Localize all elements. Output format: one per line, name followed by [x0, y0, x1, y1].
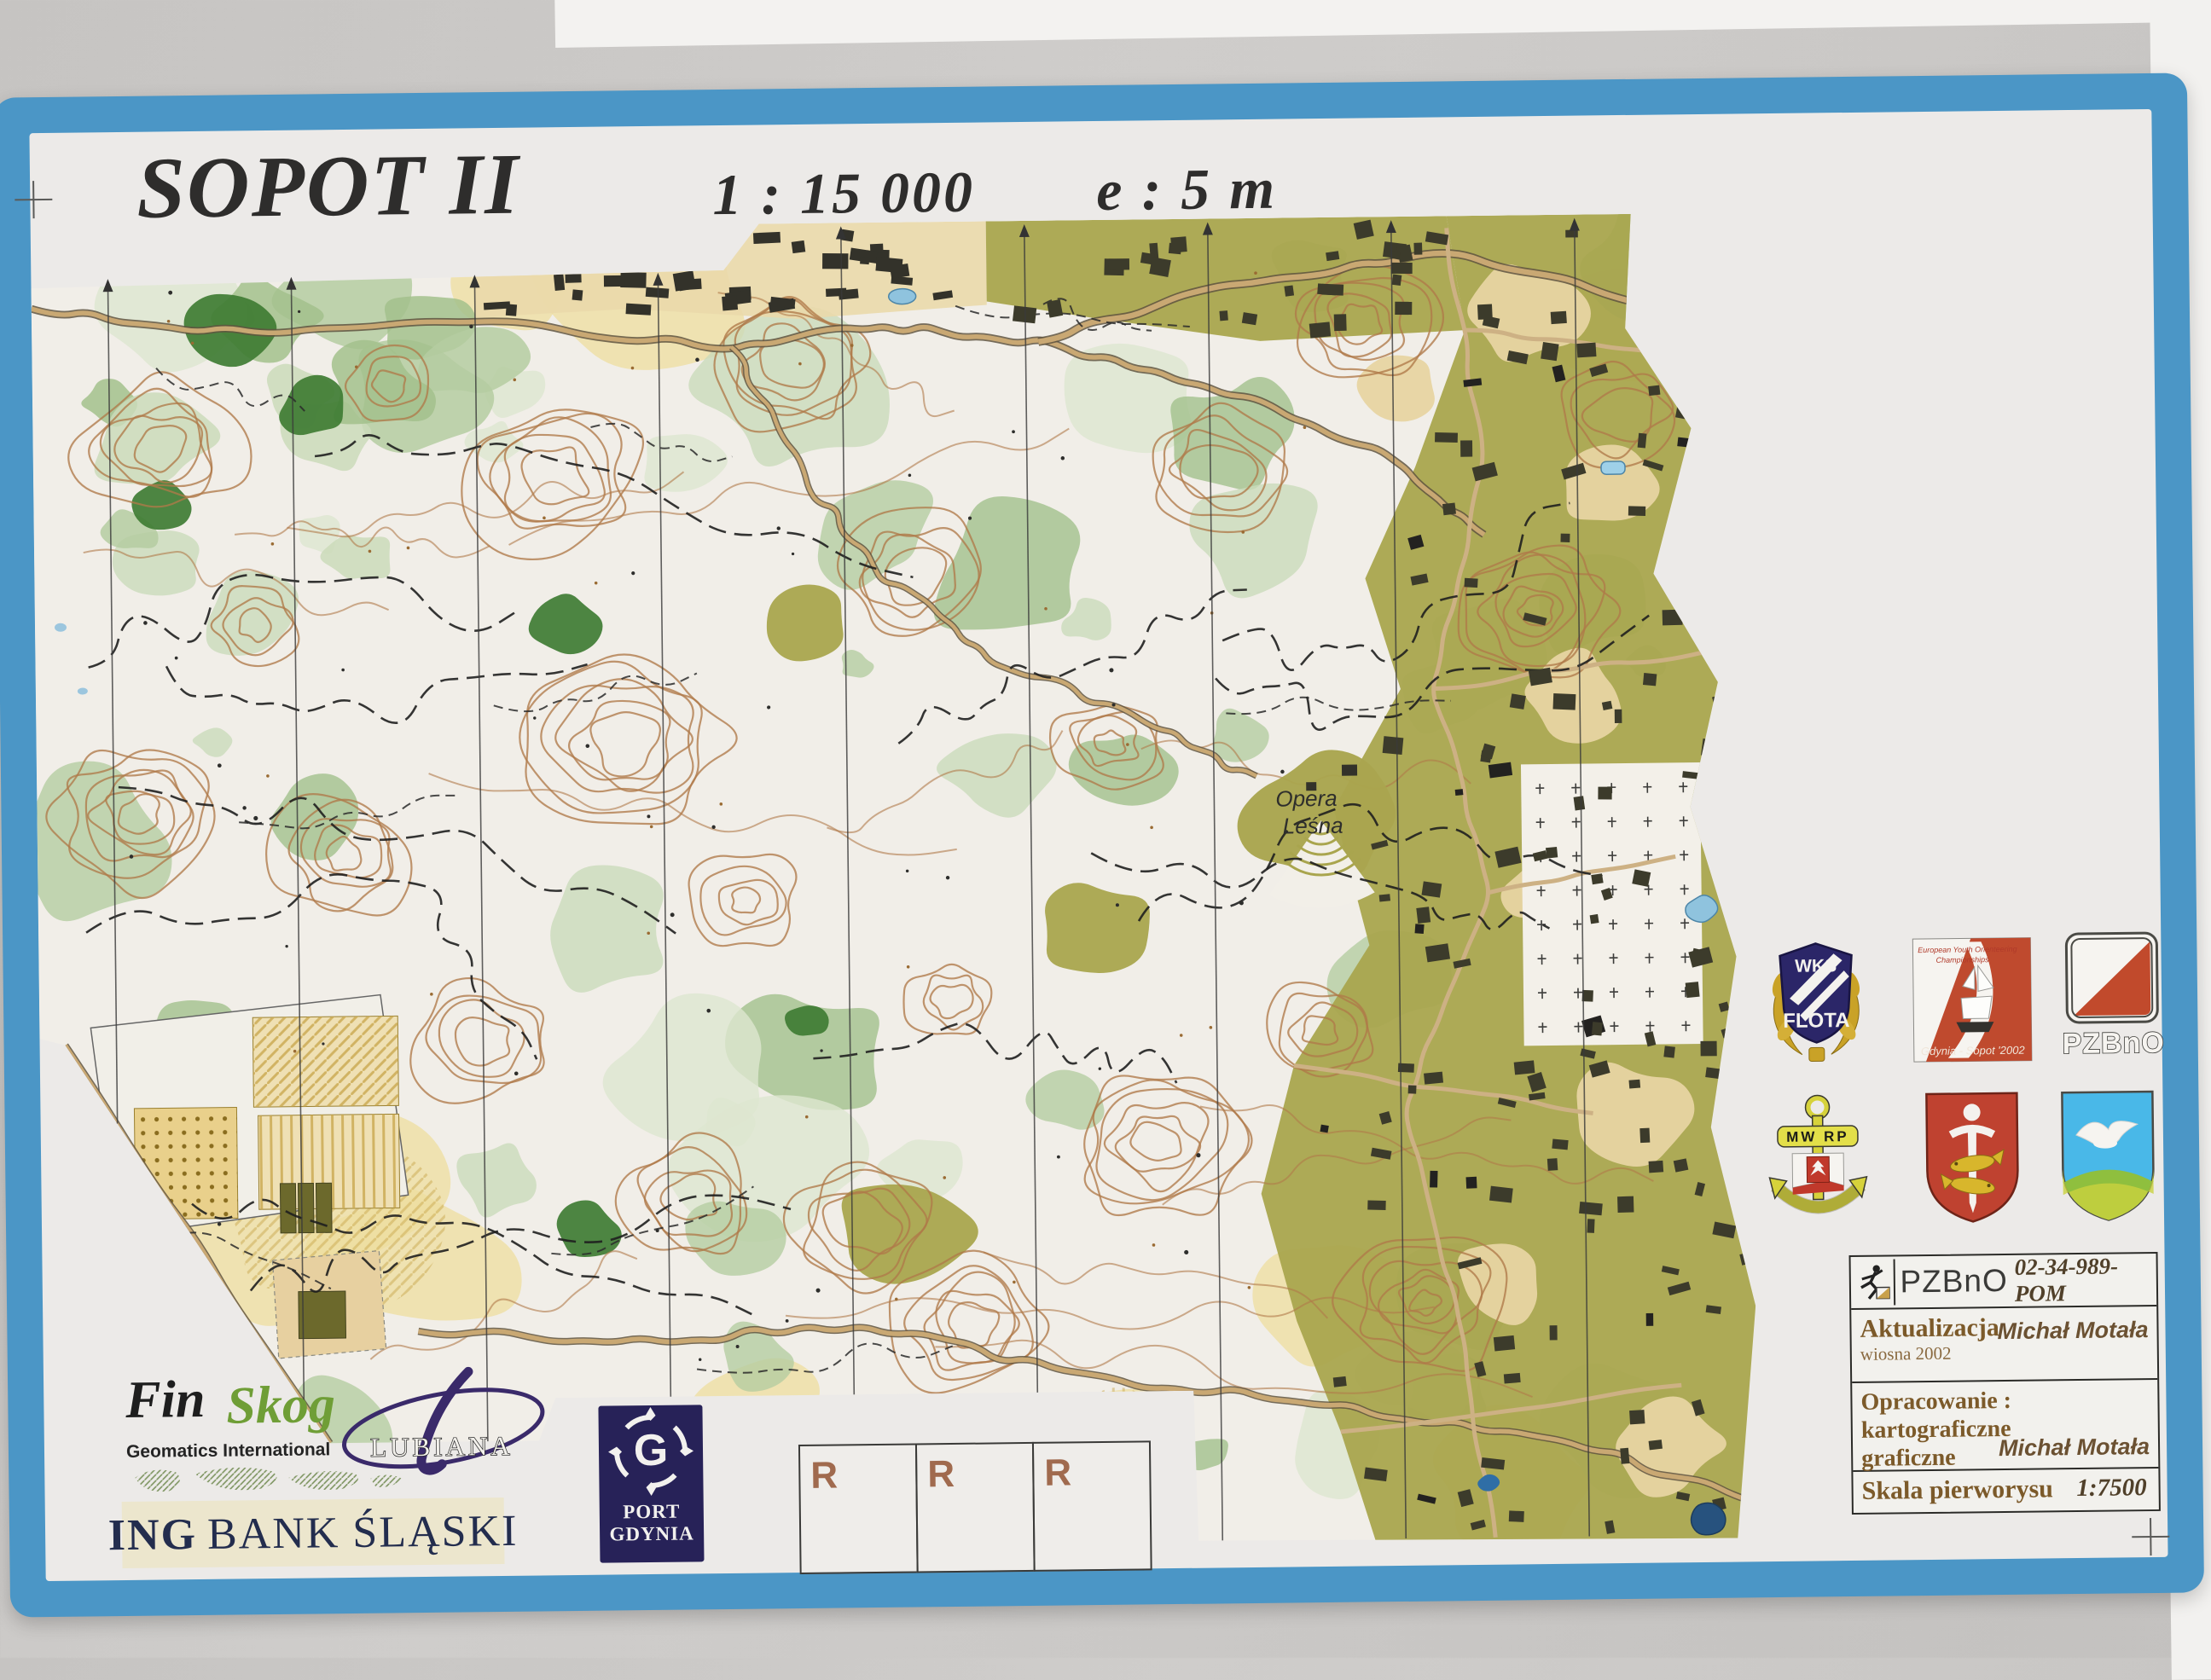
- orienteering-map-canvas: Opera Leśna: [31, 207, 1778, 1574]
- flota-name-text: FLOTA: [1783, 1009, 1850, 1033]
- map-sheet-paper: SOPOT II 1 : 15 000 e : 5 m Opera Leśna: [29, 109, 2167, 1581]
- ing-prefix: ING: [107, 1509, 197, 1561]
- reserve-box-label: R: [810, 1453, 916, 1497]
- map-info-box: PZBnO 02-34-989-POM Aktualizacja wiosna …: [1849, 1252, 2161, 1515]
- info-scale-value: 1:7500: [2076, 1474, 2147, 1503]
- gdynia-crest: [1919, 1088, 2025, 1227]
- info-scale-row: Skala pierworysu 1:7500: [1853, 1469, 2159, 1513]
- info-work-label: Opracowanie :: [1860, 1385, 2149, 1416]
- ing-bank-slaski-logo: ING BANK ŚLĄSKI: [122, 1498, 505, 1568]
- registration-cross-icon: [2132, 1518, 2169, 1555]
- pzbno-flag-label: PZBnO: [2062, 1027, 2164, 1060]
- port-gdynia-compass-icon: G: [606, 1405, 695, 1499]
- eyoc-2002-logo: European Youth Orienteering Championship…: [1911, 936, 2034, 1064]
- finskog-word1: Fin: [125, 1370, 206, 1431]
- wks-flota-logo: WKS FLOTA: [1751, 930, 1881, 1068]
- eyoc-bottom-text: Gdynia - Sopot '2002: [1921, 1044, 2026, 1057]
- flota-top-text: WKS: [1795, 956, 1837, 976]
- reserve-box: R: [1032, 1440, 1152, 1572]
- port-monogram: G: [633, 1426, 668, 1475]
- info-update-row: Aktualizacja wiosna 2002 Michał Motała: [1851, 1306, 2157, 1383]
- eyoc-title-line2: Championships: [1936, 955, 1990, 965]
- sopot-crest: [2055, 1086, 2161, 1225]
- map-sheet: SOPOT II 1 : 15 000 e : 5 m Opera Leśna: [0, 72, 2204, 1617]
- mw-rp-banner-text: MW RP: [1786, 1128, 1849, 1145]
- reserve-box: R: [798, 1443, 919, 1574]
- info-update-author: Michał Motała: [1997, 1317, 2148, 1345]
- reserve-box-label: R: [1044, 1451, 1150, 1494]
- info-map-number: 02-34-989-POM: [2014, 1253, 2156, 1307]
- opera-lesna-label: Opera: [1275, 785, 1338, 812]
- map-artwork: [31, 207, 1778, 1574]
- pzbno-runner-icon: [1853, 1259, 1895, 1306]
- ing-suffix: BANK ŚLĄSKI: [207, 1505, 519, 1559]
- reserve-punch-boxes: R R R: [798, 1440, 1151, 1574]
- info-work-row: Opracowanie : kartograficzne graficzne M…: [1852, 1380, 2158, 1472]
- pzbno-federation-logo: PZBnO: [2062, 930, 2164, 1063]
- info-box-header: PZBnO 02-34-989-POM: [1851, 1254, 2157, 1310]
- registration-cross-icon: [15, 181, 52, 218]
- info-scale-label: Skala pierworysu: [1861, 1474, 2053, 1505]
- mw-rp-navy-logo: MW RP: [1753, 1085, 1883, 1227]
- info-org-name: PZBnO: [1900, 1263, 2008, 1300]
- eyoc-title-line1: European Youth Orienteering: [1918, 945, 2017, 954]
- ing-lion-icon: [202, 1507, 203, 1561]
- reserve-box-label: R: [927, 1452, 1033, 1496]
- lubiana-wordmark: LUBIANA: [370, 1431, 514, 1463]
- info-work-author: Michał Motała: [1999, 1434, 2150, 1462]
- lubiana-logo: LUBIANA: [332, 1365, 555, 1504]
- port-line1: PORT: [609, 1500, 694, 1523]
- finskog-word2: Skog: [226, 1375, 335, 1436]
- reserve-box: R: [915, 1442, 1036, 1573]
- port-line2: GDYNIA: [609, 1522, 694, 1545]
- port-gdynia-logo: G PORT GDYNIA: [598, 1405, 704, 1562]
- opera-lesna-label: Leśna: [1283, 813, 1343, 839]
- background-top-strip: [554, 0, 2211, 48]
